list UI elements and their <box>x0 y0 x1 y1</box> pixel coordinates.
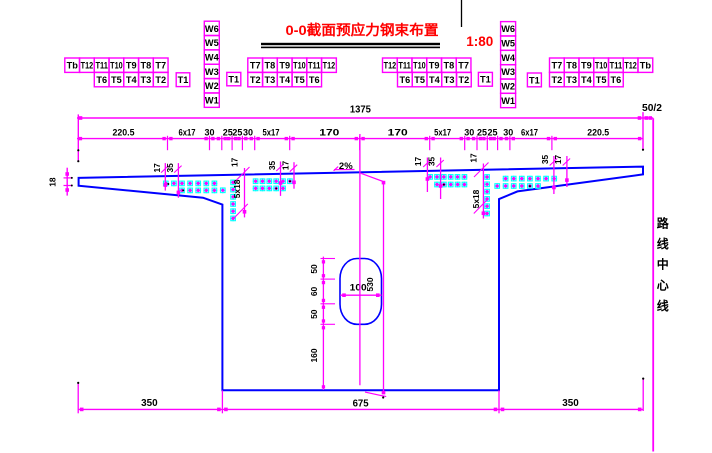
svg-text:W1: W1 <box>205 96 219 106</box>
svg-text:W2: W2 <box>205 81 219 91</box>
svg-text:W2: W2 <box>501 82 515 92</box>
svg-text:T6: T6 <box>400 75 411 85</box>
svg-text:17: 17 <box>230 157 240 167</box>
svg-text:17: 17 <box>468 153 478 163</box>
svg-text:T6: T6 <box>611 75 622 85</box>
svg-text:T12: T12 <box>81 61 94 71</box>
svg-text:W4: W4 <box>501 53 516 63</box>
svg-text:Tb: Tb <box>640 61 652 71</box>
svg-text:线: 线 <box>657 298 669 313</box>
svg-text:T12: T12 <box>323 61 336 71</box>
svg-text:T4: T4 <box>126 75 138 85</box>
svg-text:T6: T6 <box>309 75 320 85</box>
svg-text:W3: W3 <box>501 67 515 77</box>
svg-text:W6: W6 <box>205 24 219 34</box>
svg-text:35: 35 <box>426 157 436 167</box>
svg-text:T2: T2 <box>552 75 563 85</box>
svg-text:T8: T8 <box>141 61 152 71</box>
svg-text:T8: T8 <box>444 61 455 71</box>
svg-text:T1: T1 <box>228 75 239 85</box>
svg-text:35: 35 <box>540 155 550 165</box>
svg-text:T11: T11 <box>95 61 108 71</box>
svg-text:T5: T5 <box>596 75 607 85</box>
svg-text:T9: T9 <box>279 61 290 71</box>
svg-text:T4: T4 <box>279 75 291 85</box>
svg-text:350: 350 <box>141 398 158 409</box>
svg-text:50: 50 <box>309 309 319 319</box>
svg-text:线: 线 <box>657 236 669 251</box>
svg-text:6x17: 6x17 <box>179 128 196 138</box>
svg-text:路: 路 <box>657 216 670 231</box>
svg-text:35: 35 <box>267 161 277 171</box>
svg-text:T10: T10 <box>595 61 608 71</box>
svg-text:50: 50 <box>309 264 319 274</box>
svg-text:530: 530 <box>365 277 375 291</box>
svg-text:5x17: 5x17 <box>434 128 451 138</box>
svg-text:W4: W4 <box>205 53 220 63</box>
svg-text:W3: W3 <box>205 67 219 77</box>
svg-text:30: 30 <box>204 128 214 138</box>
svg-text:T11: T11 <box>308 61 321 71</box>
svg-text:50/2: 50/2 <box>642 103 662 114</box>
svg-text:25: 25 <box>223 128 233 138</box>
svg-text:0-0截面预应力钢束布置: 0-0截面预应力钢束布置 <box>286 22 439 38</box>
svg-text:6x17: 6x17 <box>521 128 538 138</box>
svg-text:T2: T2 <box>250 75 261 85</box>
svg-text:T11: T11 <box>610 61 623 71</box>
svg-text:220.5: 220.5 <box>587 128 609 138</box>
svg-text:30: 30 <box>243 128 253 138</box>
svg-text:30: 30 <box>464 128 474 138</box>
svg-text:T7: T7 <box>552 61 563 71</box>
svg-text:T1: T1 <box>480 75 491 85</box>
svg-text:T5: T5 <box>111 75 122 85</box>
svg-text:170: 170 <box>388 128 408 138</box>
svg-text:675: 675 <box>353 398 369 409</box>
svg-text:T6: T6 <box>96 75 107 85</box>
svg-text:中: 中 <box>657 257 669 272</box>
svg-text:T2: T2 <box>459 75 470 85</box>
svg-text:170: 170 <box>319 128 339 138</box>
svg-text:T9: T9 <box>581 61 592 71</box>
svg-text:T12: T12 <box>384 61 397 71</box>
svg-text:心: 心 <box>657 278 669 292</box>
svg-text:25: 25 <box>487 128 497 138</box>
svg-text:60: 60 <box>309 287 319 297</box>
svg-text:17: 17 <box>553 155 563 165</box>
svg-text:T4: T4 <box>581 75 593 85</box>
svg-text:T5: T5 <box>294 75 305 85</box>
svg-text:2%: 2% <box>339 161 353 172</box>
svg-text:5x18: 5x18 <box>232 179 242 198</box>
svg-text:T7: T7 <box>250 61 261 71</box>
svg-text:1375: 1375 <box>350 104 371 115</box>
svg-text:T10: T10 <box>293 61 306 71</box>
svg-text:T3: T3 <box>265 75 276 85</box>
svg-text:W5: W5 <box>205 38 219 48</box>
svg-text:W6: W6 <box>501 24 515 34</box>
svg-text:W1: W1 <box>501 96 515 106</box>
svg-text:T9: T9 <box>429 61 440 71</box>
svg-text:T3: T3 <box>566 75 577 85</box>
svg-text:25: 25 <box>232 128 242 138</box>
svg-text:Tb: Tb <box>67 61 79 71</box>
svg-text:T5: T5 <box>414 75 425 85</box>
svg-text:T10: T10 <box>110 61 123 71</box>
svg-text:T7: T7 <box>458 61 469 71</box>
svg-text:30: 30 <box>503 128 513 138</box>
svg-text:T9: T9 <box>126 61 137 71</box>
svg-text:17: 17 <box>413 157 423 167</box>
svg-text:T3: T3 <box>444 75 455 85</box>
svg-text:17: 17 <box>152 163 162 173</box>
svg-text:T1: T1 <box>178 75 189 85</box>
svg-text:W5: W5 <box>501 39 515 49</box>
svg-text:1:80: 1:80 <box>466 34 493 49</box>
svg-text:160: 160 <box>309 348 319 362</box>
svg-text:T12: T12 <box>624 61 637 71</box>
svg-text:18: 18 <box>48 177 58 187</box>
svg-text:5x17: 5x17 <box>263 128 280 138</box>
svg-text:T8: T8 <box>265 61 276 71</box>
svg-text:T4: T4 <box>429 75 441 85</box>
svg-text:T7: T7 <box>155 61 166 71</box>
svg-text:35: 35 <box>165 163 175 173</box>
svg-text:350: 350 <box>562 398 579 409</box>
svg-text:T2: T2 <box>155 75 166 85</box>
svg-text:T8: T8 <box>566 61 577 71</box>
svg-text:T11: T11 <box>398 61 411 71</box>
svg-text:5x18: 5x18 <box>471 189 481 208</box>
svg-text:25: 25 <box>477 128 487 138</box>
svg-text:T10: T10 <box>413 61 426 71</box>
svg-text:T1: T1 <box>529 75 540 85</box>
svg-text:220.5: 220.5 <box>113 128 135 138</box>
svg-text:T3: T3 <box>141 75 152 85</box>
svg-text:17: 17 <box>281 161 291 171</box>
